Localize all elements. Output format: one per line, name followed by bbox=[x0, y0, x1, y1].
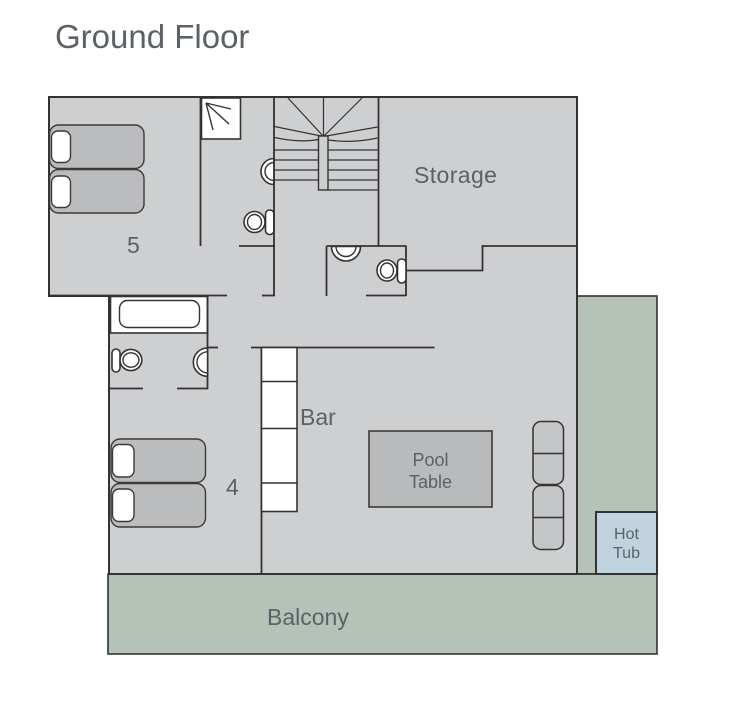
svg-text:Bar: Bar bbox=[300, 404, 336, 430]
svg-text:Storage: Storage bbox=[414, 162, 497, 188]
svg-text:4: 4 bbox=[226, 474, 239, 500]
svg-text:Table: Table bbox=[409, 472, 452, 492]
svg-text:Hot: Hot bbox=[614, 526, 639, 543]
svg-text:Tub: Tub bbox=[613, 545, 640, 562]
svg-text:5: 5 bbox=[127, 232, 140, 258]
svg-text:Balcony: Balcony bbox=[267, 604, 349, 630]
svg-text:Pool: Pool bbox=[412, 450, 448, 470]
svg-text:Ground Floor: Ground Floor bbox=[55, 18, 249, 55]
